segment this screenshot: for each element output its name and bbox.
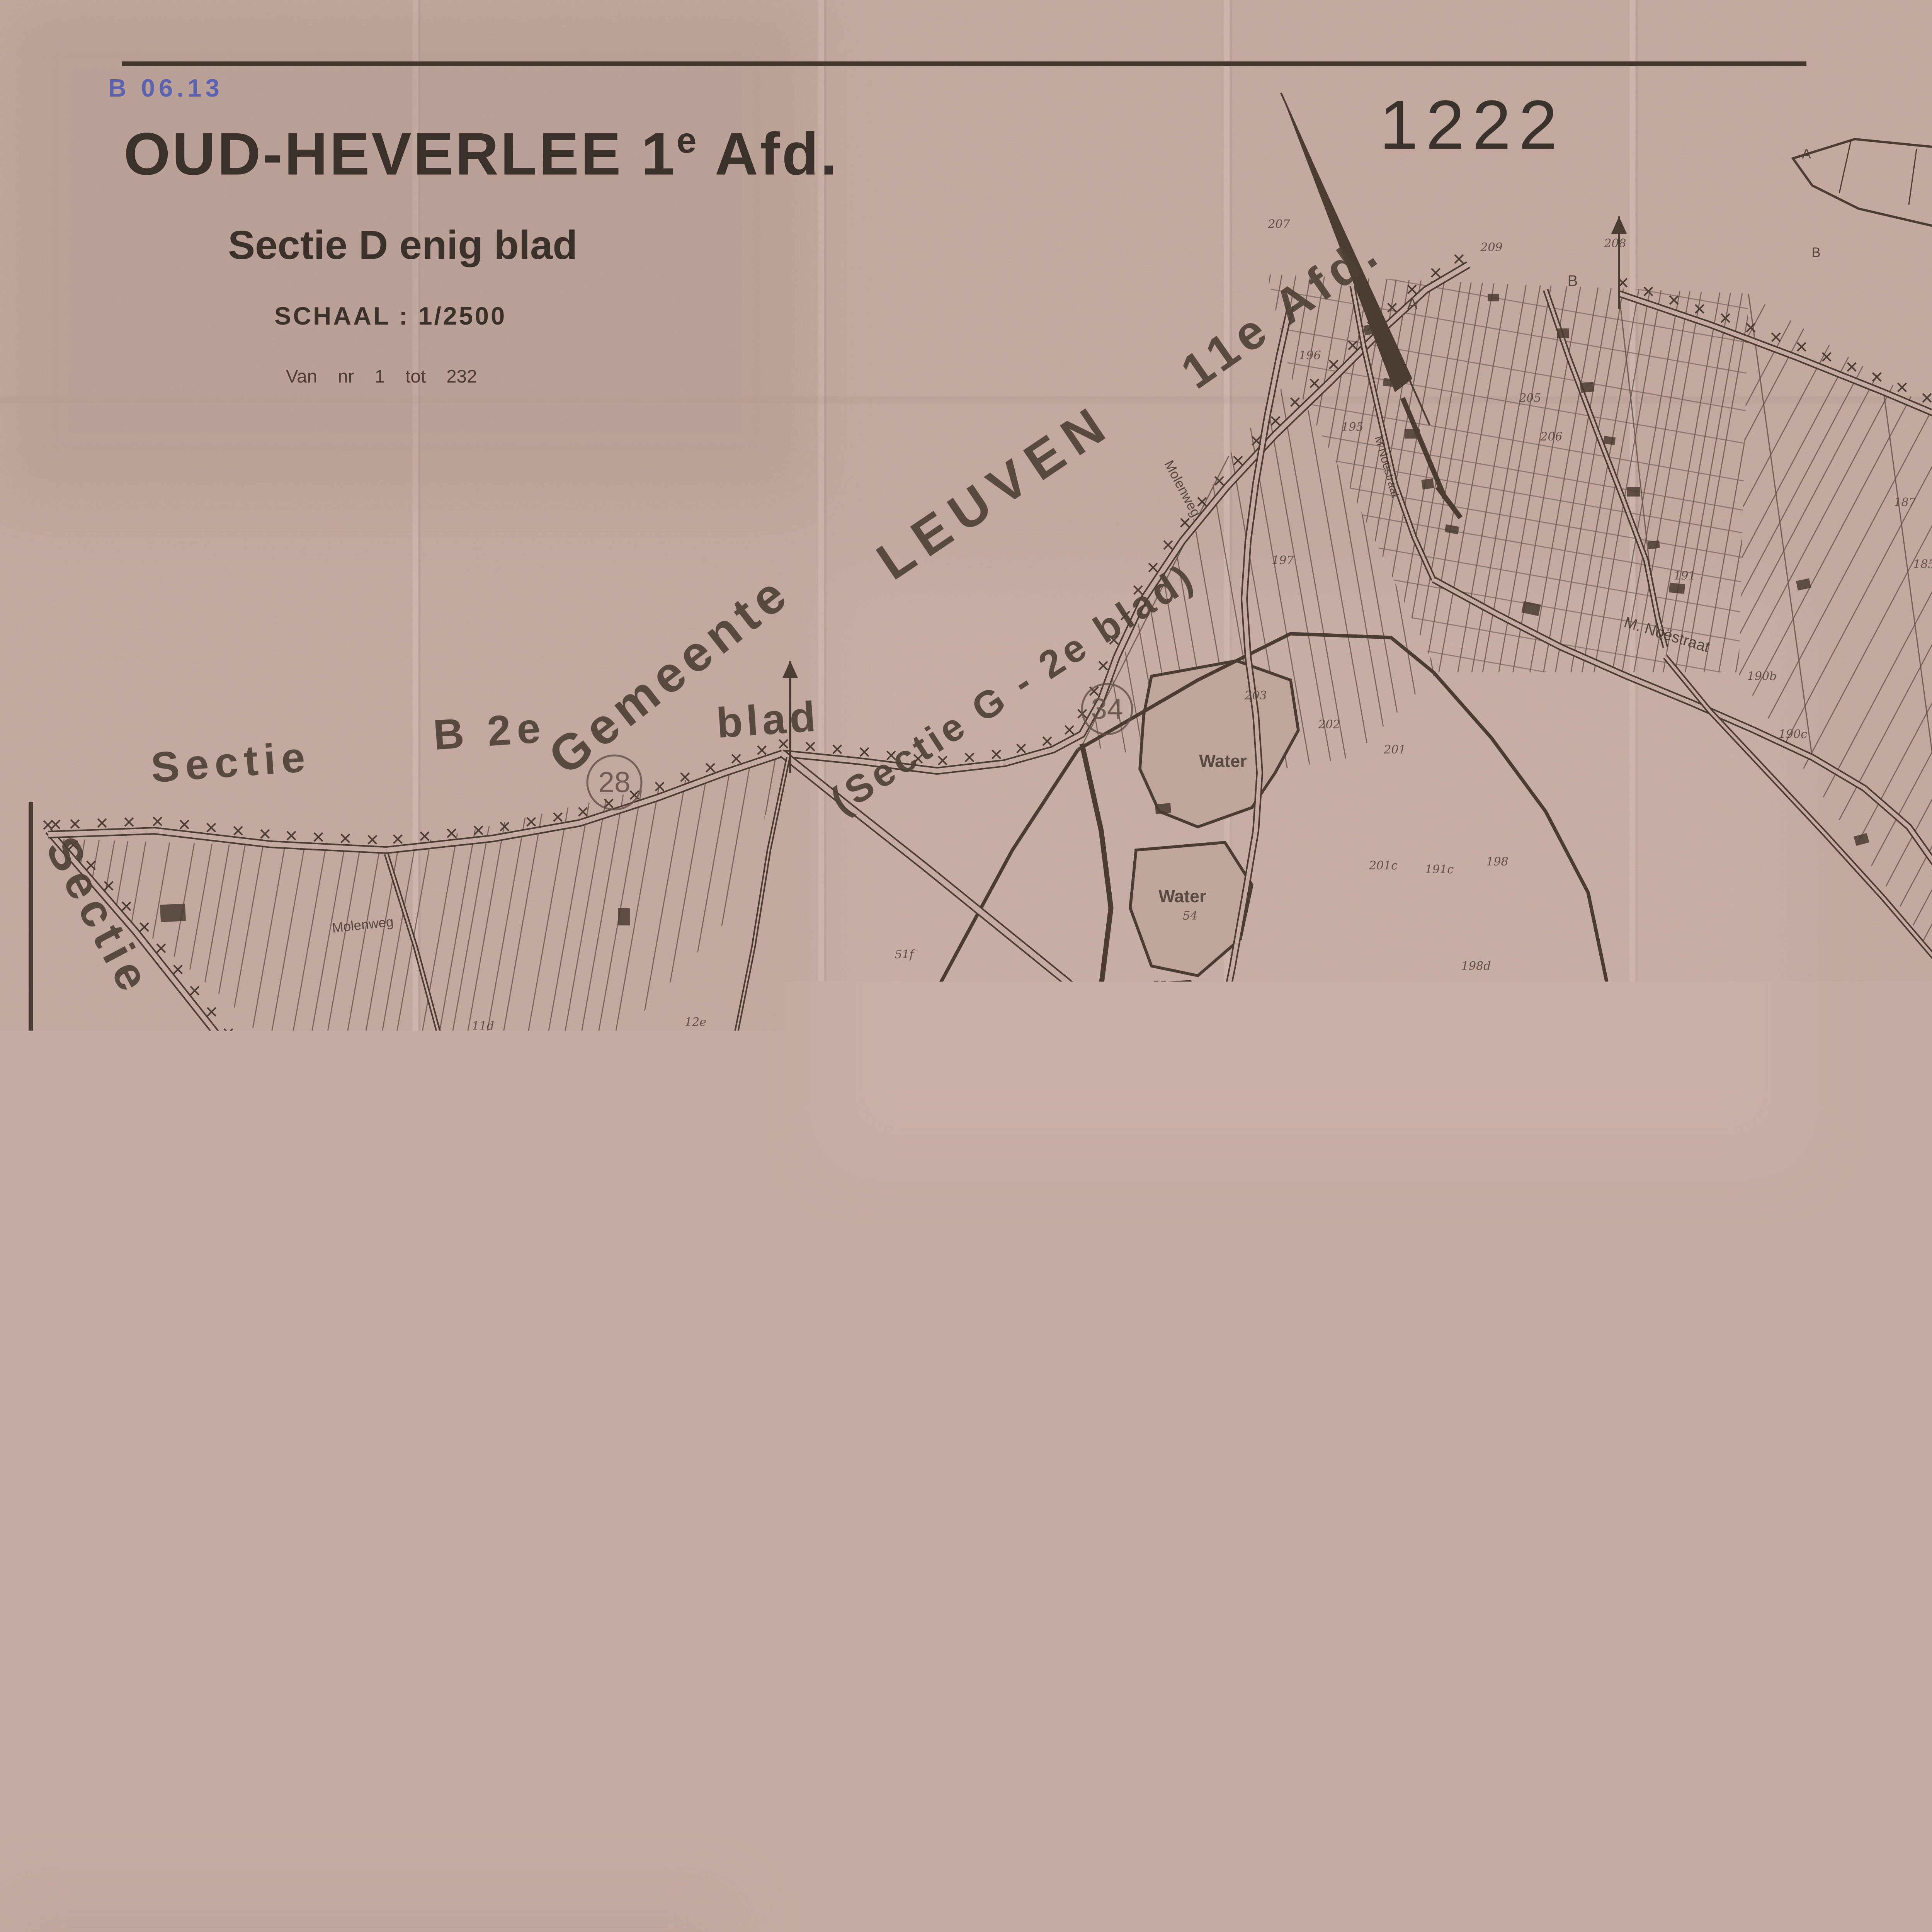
street-label: A (1407, 296, 1418, 313)
building (618, 908, 630, 925)
parcel-number: 78 (850, 1684, 865, 1697)
building (1669, 583, 1685, 594)
parcel-number: 14a (470, 1095, 492, 1108)
parcel-number: 15d (510, 1187, 532, 1201)
parcel-number: 207 (1267, 218, 1290, 231)
water-label: Water (533, 1683, 576, 1700)
parcel-number: 16a (534, 1222, 556, 1236)
parcel-number: 85c (1381, 1091, 1402, 1104)
parcel-range-label: Van nr 1 tot 232 (286, 367, 477, 388)
parcel-number: 196 (1299, 349, 1321, 362)
parcel-number: 56 (1129, 1052, 1143, 1066)
sheet-circle-number: 24 (1242, 1608, 1274, 1641)
parcel-number: 83a (1434, 1145, 1456, 1158)
building (1627, 487, 1640, 497)
building (1580, 382, 1594, 393)
parcel-number: 12e (685, 1015, 706, 1029)
area-label: ROOSENBERG (668, 1082, 908, 1111)
building (160, 903, 186, 922)
parcel-number: 83e (1442, 1110, 1464, 1124)
water-label: Water (919, 1261, 966, 1281)
parcel-number: 94a (1894, 1346, 1916, 1359)
boundary-label: 2e (1812, 1862, 1866, 1912)
parcel-number: 55 (1152, 979, 1167, 992)
parcel-number: 12u (659, 1158, 682, 1172)
street-label: A (1802, 146, 1811, 162)
parcel-number: 185 (1913, 558, 1932, 571)
parcel-number: 206 (1540, 430, 1562, 444)
parcel-number: 11 (441, 1044, 456, 1058)
parcel-number: 187 (1894, 496, 1916, 509)
area-label: VAELBEEK-VELD (444, 1314, 704, 1342)
parcel-number: 51f (895, 948, 915, 961)
water-label: Water (1199, 751, 1247, 771)
parcel-number: 80h (1218, 1497, 1240, 1510)
parcel-number: 91 (1859, 1524, 1874, 1537)
parcel-number: 203 (1244, 689, 1267, 702)
map-title-sup: e (677, 120, 699, 160)
parcel-number: 60 (964, 1238, 979, 1251)
parcel-number: 15e (503, 1160, 525, 1174)
parcel-number: 209 (1480, 241, 1502, 254)
boundary-label: blad (715, 692, 821, 747)
parcel-number: 11d (472, 1019, 494, 1033)
parcel-number: 28e (476, 1346, 498, 1359)
boundary-label: B 2e (432, 704, 548, 759)
sheet-number: 1222 (1379, 85, 1565, 166)
building (1603, 436, 1616, 445)
map-title-tail: Afd. (699, 121, 839, 188)
parcel-number: 57 (1229, 1054, 1244, 1068)
water-label: Water (1116, 1026, 1163, 1045)
map-title-text: OUD-HEVERLEE 1 (124, 121, 677, 188)
street-label: B (1811, 245, 1820, 260)
parcel-number: 190b (1747, 670, 1777, 683)
map-title: OUD-HEVERLEE 1e Afd. (124, 120, 839, 190)
parcel-number: 92 (1871, 1439, 1885, 1452)
parcel-number: 63 (762, 1806, 776, 1819)
parcel-number: 29 (425, 1516, 440, 1529)
cadastral-map: GemeenteLEUVEN11e Afd.(Sectie G - 2e bla… (0, 0, 1932, 1932)
parcel-number: 81 (1198, 1133, 1213, 1147)
boundary-label: C (1424, 1870, 1461, 1923)
parcel-number: 191c (1425, 863, 1454, 876)
parcel-number: 84 (1476, 1131, 1491, 1145)
parcel-number: 58d (1082, 1083, 1104, 1097)
parcel-number: 208 (1604, 237, 1626, 250)
boundary-label: Sectie (1023, 1882, 1185, 1932)
sheet-circle-number: 28 (598, 766, 630, 798)
parcel-number: 62 (713, 1626, 728, 1639)
building (1421, 478, 1434, 490)
water-label: Water (655, 1578, 697, 1595)
building (1155, 803, 1171, 814)
map-sheet: GemeenteLEUVEN11e Afd.(Sectie G - 2e bla… (0, 0, 1932, 1932)
parcel-number: 84f (1791, 1292, 1812, 1305)
parcel-number: 190c (1779, 728, 1807, 741)
parcel-number: 201 (1383, 743, 1406, 757)
parcel-number: 14e (486, 1129, 507, 1143)
parcel-number: 50 (738, 1338, 753, 1352)
parcel-number: 79a (903, 1686, 925, 1699)
parcel-number: 28f (504, 1388, 525, 1402)
parcel-number: 84e (1461, 1257, 1483, 1270)
parcel-number: 198 (1486, 855, 1508, 869)
water-label: Water (1158, 886, 1206, 906)
parcel-number: 61 (806, 1354, 821, 1367)
parcel-number: 191 (1673, 569, 1696, 583)
building (1488, 294, 1499, 301)
parcel-number: 201c (1369, 859, 1398, 872)
building (1648, 541, 1660, 549)
map-scale-label: SCHAAL : 1/2500 (274, 301, 507, 330)
parcel-number: 202 (1318, 718, 1340, 731)
building (1557, 328, 1569, 338)
sheet-circle-number: 34 (1091, 692, 1123, 725)
sheet-circle-number: 27 (509, 1925, 541, 1932)
parcel-number: 205 (1519, 391, 1541, 405)
parcel-number: 198d (1461, 959, 1491, 973)
area-label: HET SOET WATER (697, 1646, 973, 1675)
archive-stamp-code: B 06.13 (108, 73, 223, 102)
map-subtitle: Sectie D enig blad (228, 224, 577, 270)
parcel-number: 12m (638, 1226, 664, 1240)
parcel-number: 17 (456, 1280, 471, 1294)
parcel-number: 54 (1183, 909, 1197, 923)
parcel-number: 195 (1341, 420, 1363, 434)
parcel-number: 47a (553, 1469, 575, 1483)
street-label: B (1568, 272, 1578, 289)
parcel-number: 197 (1272, 554, 1294, 567)
parcel-number: 12v (665, 1114, 687, 1128)
